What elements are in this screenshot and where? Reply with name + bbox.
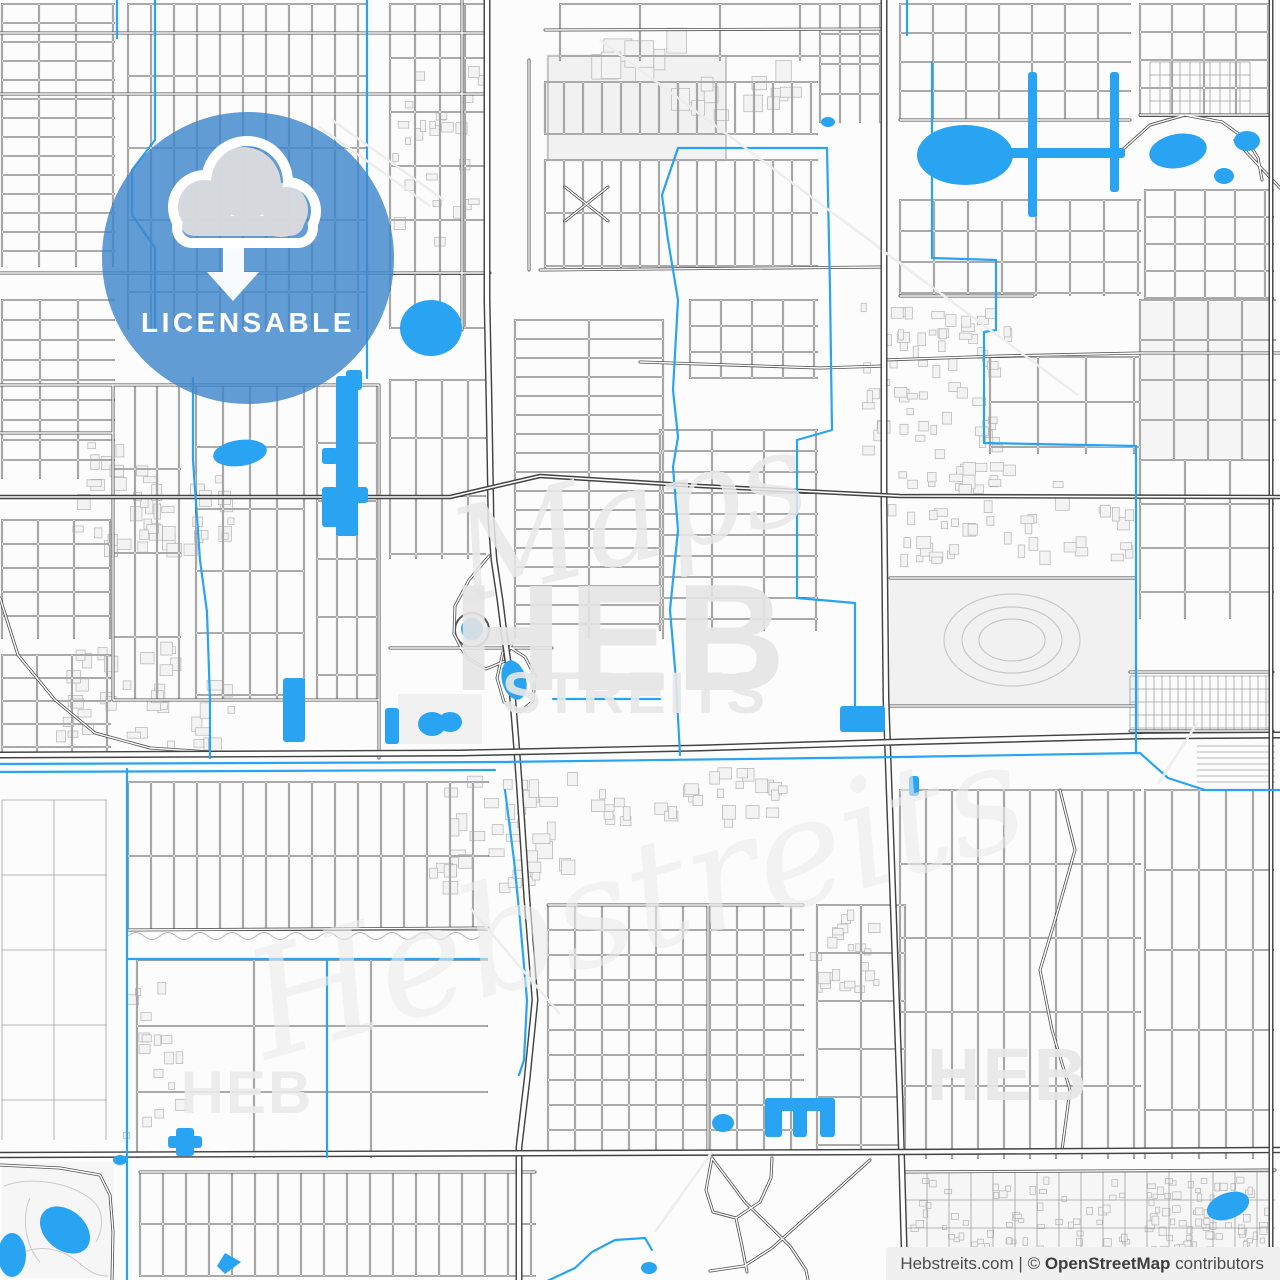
- copyright-symbol: ©: [1028, 1247, 1045, 1280]
- attribution-suffix: contributors: [1170, 1247, 1264, 1280]
- watermark-text: HEB: [927, 1033, 1089, 1116]
- badge-label: LICENSABLE: [141, 307, 355, 338]
- attribution-site-link[interactable]: Hebstreits.com: [900, 1247, 1013, 1280]
- map-preview-image: MapsHEBSTREITSHebstreitsHEBHEB: [0, 0, 1280, 1280]
- attribution-separator: |: [1014, 1247, 1028, 1280]
- watermark-text: HEB: [181, 1059, 314, 1126]
- city-map: MapsHEBSTREITSHebstreitsHEBHEB: [0, 0, 1280, 1280]
- watermark-text: STREITS: [502, 661, 768, 726]
- attribution-bar: Hebstreits.com | © OpenStreetMap contrib…: [886, 1247, 1280, 1280]
- licensable-badge: LICENSABLE: [102, 112, 394, 404]
- attribution-osm-link[interactable]: OpenStreetMap: [1045, 1247, 1171, 1280]
